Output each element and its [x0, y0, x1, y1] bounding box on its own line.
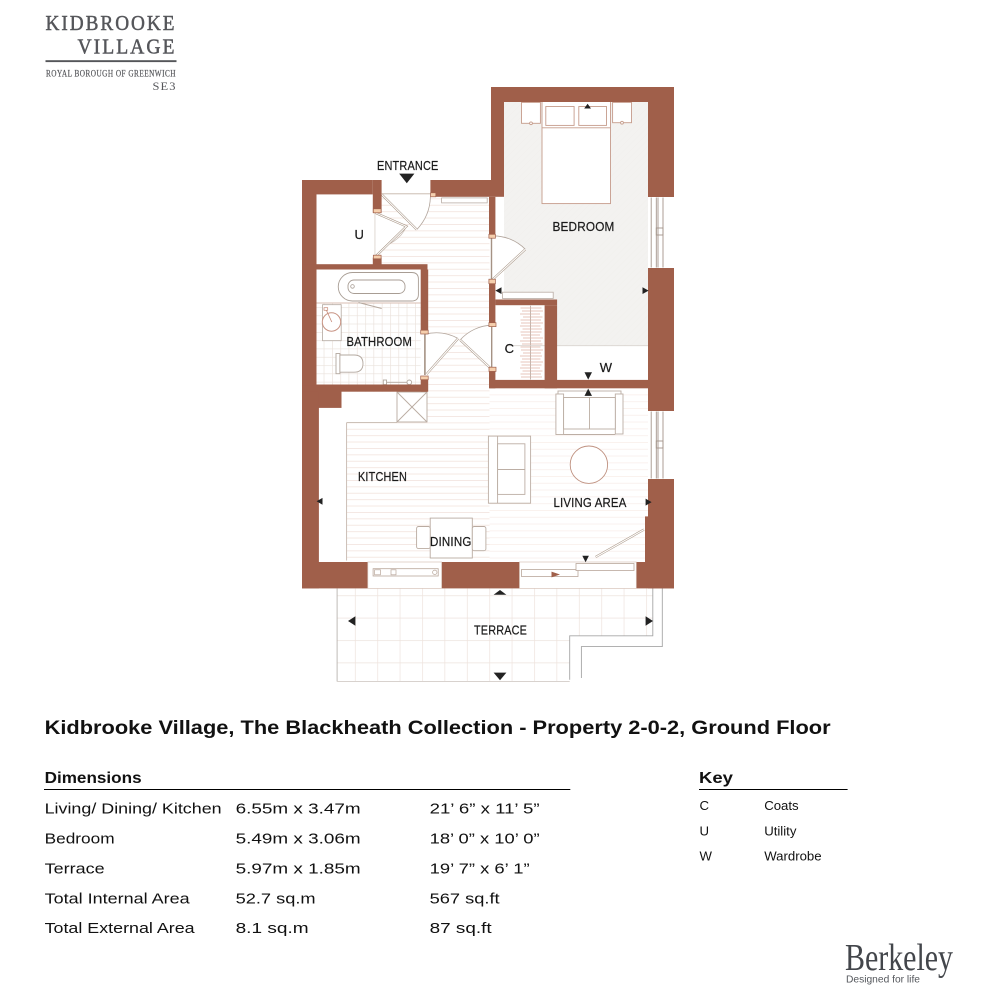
svg-text:Wardrobe: Wardrobe	[764, 849, 821, 864]
svg-text:KITCHEN: KITCHEN	[358, 469, 407, 484]
svg-text:Coats: Coats	[764, 798, 799, 813]
svg-text:Dimensions: Dimensions	[45, 770, 142, 787]
svg-text:21’ 6” x 11’ 5”: 21’ 6” x 11’ 5”	[430, 801, 540, 818]
svg-text:VILLAGE: VILLAGE	[78, 35, 177, 59]
svg-text:ENTRANCE: ENTRANCE	[377, 158, 439, 173]
svg-text:SE3: SE3	[153, 81, 177, 93]
svg-text:U: U	[355, 227, 365, 242]
svg-text:Terrace: Terrace	[45, 861, 105, 878]
svg-text:Total Internal Area: Total Internal Area	[45, 891, 191, 908]
svg-text:C: C	[505, 341, 515, 356]
svg-text:KIDBROOKE: KIDBROOKE	[46, 11, 177, 35]
svg-text:Designed for life: Designed for life	[846, 975, 921, 986]
svg-text:DINING: DINING	[430, 534, 472, 549]
svg-text:Key: Key	[699, 770, 733, 787]
svg-text:18’ 0” x 10’ 0”: 18’ 0” x 10’ 0”	[430, 831, 540, 848]
svg-text:5.97m x 1.85m: 5.97m x 1.85m	[236, 861, 361, 878]
svg-text:BATHROOM: BATHROOM	[347, 334, 413, 349]
svg-text:C: C	[700, 798, 710, 813]
svg-text:5.49m x 3.06m: 5.49m x 3.06m	[236, 831, 361, 848]
svg-text:W: W	[600, 360, 613, 375]
svg-text:W: W	[700, 849, 713, 864]
svg-text:Berkeley: Berkeley	[845, 937, 953, 979]
svg-text:LIVING AREA: LIVING AREA	[554, 495, 627, 510]
svg-text:6.55m x 3.47m: 6.55m x 3.47m	[236, 801, 361, 818]
svg-text:Bedroom: Bedroom	[45, 831, 115, 848]
svg-text:Total External Area: Total External Area	[45, 920, 196, 937]
svg-text:Utility: Utility	[764, 823, 797, 838]
svg-text:567 sq.ft: 567 sq.ft	[430, 891, 501, 908]
svg-text:ROYAL BOROUGH OF GREENWICH: ROYAL BOROUGH OF GREENWICH	[46, 69, 176, 79]
svg-text:19’ 7” x 6’ 1”: 19’ 7” x 6’ 1”	[430, 861, 530, 878]
svg-text:Kidbrooke Village, The Blackhe: Kidbrooke Village, The Blackheath Collec…	[45, 717, 831, 739]
svg-text:BEDROOM: BEDROOM	[553, 219, 615, 234]
svg-text:U: U	[700, 823, 710, 838]
svg-text:87 sq.ft: 87 sq.ft	[430, 920, 493, 937]
svg-text:52.7 sq.m: 52.7 sq.m	[236, 891, 316, 908]
svg-text:8.1 sq.m: 8.1 sq.m	[236, 920, 309, 937]
svg-text:TERRACE: TERRACE	[474, 623, 527, 638]
svg-text:Living/ Dining/ Kitchen: Living/ Dining/ Kitchen	[45, 801, 222, 818]
